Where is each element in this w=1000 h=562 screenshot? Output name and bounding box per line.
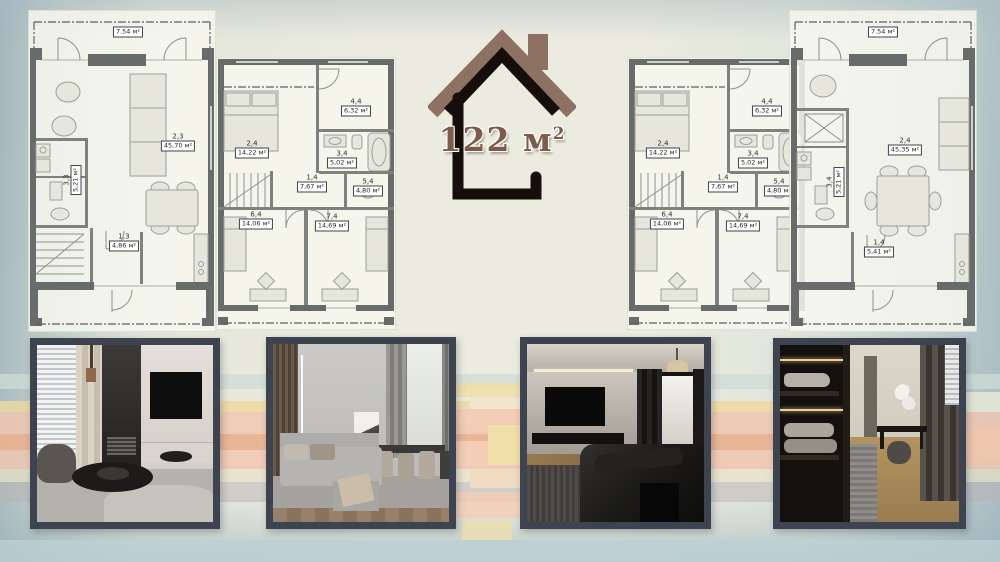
wardrobe-divider: [843, 345, 850, 522]
room-code: 1,4: [306, 174, 317, 182]
balcony-label: 7.54 м²: [113, 27, 143, 38]
room-area: 45,35 м²: [888, 145, 922, 156]
room-code: 2,4: [899, 137, 910, 145]
mosaic-tile: [452, 441, 488, 465]
room-area: 14,69 м²: [726, 221, 760, 232]
bed-bench: [640, 483, 679, 522]
tv: [545, 387, 605, 426]
room-label-bathroom: 3,3 5,21 м²: [63, 165, 82, 195]
side-table: [160, 451, 192, 462]
room-area: 7,67 м²: [297, 182, 327, 193]
mosaic-tile: [966, 428, 1000, 462]
room-code: 1,3: [118, 233, 129, 241]
room-code: 3,4: [826, 176, 834, 187]
room-code: 5,4: [773, 178, 784, 186]
room-code: 5,4: [362, 178, 373, 186]
room-label-hall: 1,4 7,67 м²: [297, 174, 327, 193]
dining-chair: [398, 453, 414, 480]
room-area: 14,06 м²: [650, 219, 684, 230]
shelf-led-strip: [780, 359, 843, 361]
room-code: 6,4: [661, 211, 672, 219]
room-label-living: 2,3 45,70 м²: [161, 133, 195, 152]
room-label-hall: 1,4 7,67 м²: [708, 174, 738, 193]
fireplace: [107, 437, 135, 455]
tv: [150, 372, 203, 420]
floor-plan-2: 2,4 14,22 м² 4,4 6,32 м² 3,4 5,02 м² 1,4…: [216, 57, 396, 330]
room-area: 14,69 м²: [315, 221, 349, 232]
room-area: 14,22 м²: [235, 148, 269, 159]
room-label-hall: 1,3 4,86 м²: [109, 233, 139, 252]
room-code: 4,4: [761, 98, 772, 106]
photo-lounge-scene: [273, 344, 449, 522]
mosaic-tile: [452, 492, 522, 518]
room-code: 2,3: [172, 133, 183, 141]
shelf-led-strip: [780, 409, 843, 411]
room-code: 1,4: [873, 239, 884, 247]
mosaic-tile: [470, 397, 522, 409]
pouf: [887, 441, 910, 464]
logo-area-main: 122 м: [439, 120, 553, 159]
media-console: [532, 433, 624, 444]
room-label-bathroom: 3,4 5,21 м²: [826, 167, 845, 197]
room-area: 5,02 м²: [327, 158, 357, 169]
wardrobe-shelf: [780, 455, 839, 460]
floor-plan-3: 2,4 14,22 м² 4,4 6,32 м² 3,4 5,02 м² 1,4…: [627, 57, 807, 330]
room-code: 2,4: [246, 140, 257, 148]
room-area: 5,21 м²: [834, 167, 845, 197]
room-code: 3,3: [63, 174, 71, 185]
window-blinds: [945, 345, 959, 405]
dining-chair-dark: [440, 451, 449, 479]
room-area: 14,06 м²: [239, 219, 273, 230]
pendant-lamp: [90, 345, 93, 370]
pendant-lamp-shade: [86, 368, 96, 382]
room-area: 4,80 м²: [353, 186, 383, 197]
room-code: 2,4: [657, 140, 668, 148]
runner-rug: [850, 444, 877, 522]
towel-stack: [784, 423, 834, 437]
room-label: 5,4 4,80 м²: [353, 178, 383, 197]
room-label-bedroom: 2,4 14,22 м²: [235, 140, 269, 159]
house-icon: [428, 14, 576, 212]
photo-living-room-scene: [37, 345, 213, 522]
room-code: 4,4: [350, 98, 361, 106]
photo-living-room-render: [30, 338, 220, 529]
mosaic-tile: [470, 470, 522, 488]
room-area: 7.54 м²: [868, 27, 898, 38]
room-label-bedroom: 7,4 14,69 м²: [726, 213, 760, 232]
window: [662, 376, 694, 444]
room-area: 5,02 м²: [738, 158, 768, 169]
photo-wardrobe-scene: [780, 345, 959, 522]
mosaic-tile: [462, 520, 512, 540]
console-leg: [880, 432, 884, 450]
photo-lounge-dining-render: [266, 337, 456, 529]
room-area: 5,41 м²: [864, 247, 894, 258]
room-area: 7.54 м²: [113, 27, 143, 38]
room-area: 7,67 м²: [708, 182, 738, 193]
floor-plan-4: 7.54 м² 2,4 45,35 м² 3,4 5,21 м² 1,4 5,4…: [789, 10, 977, 332]
room-label-bathroom: 3,4 5,02 м²: [327, 150, 357, 169]
sofa-cushion: [310, 444, 335, 460]
throw-blanket: [337, 473, 374, 507]
room-area: 6,32 м²: [752, 106, 782, 117]
pendant-lamp: [667, 360, 688, 372]
room-label-bathroom: 3,4 5,02 м²: [738, 150, 768, 169]
room-code: 1,4: [717, 174, 728, 182]
room-area: 45,70 м²: [161, 141, 195, 152]
room-code: 7,4: [326, 213, 337, 221]
stripe-bottom-blue: [0, 540, 1000, 562]
room-area: 5,21 м²: [71, 165, 82, 195]
room-code: 3,4: [336, 150, 347, 158]
wall-pillar: [864, 356, 877, 437]
dining-chair: [419, 451, 435, 479]
table-bowl: [97, 467, 129, 479]
towel-stack: [784, 373, 831, 387]
room-label-living: 2,4 45,35 м²: [888, 137, 922, 156]
room-label: 4,4 6,32 м²: [752, 98, 782, 117]
logo-area-text: 122 м2: [428, 120, 576, 159]
towel-stack: [784, 439, 838, 453]
mosaic-tile: [452, 383, 522, 397]
room-label: 4,4 6,32 м²: [341, 98, 371, 117]
floor-plan-1-drawing: [28, 10, 216, 332]
console-leg: [920, 432, 924, 450]
room-code: 3,4: [747, 150, 758, 158]
room-area: 6,32 м²: [341, 106, 371, 117]
wardrobe-shelf: [780, 391, 839, 396]
photo-bedroom-scene: [527, 344, 704, 522]
floor-plan-4-drawing: [789, 10, 977, 332]
room-label-hall: 1,4 5,41 м²: [864, 239, 894, 258]
room-area: 4,86 м²: [109, 241, 139, 252]
logo-house-122: 122 м2: [428, 14, 576, 212]
room-code: 7,4: [737, 213, 748, 221]
room-label-bedroom: 6,4 14,06 м²: [239, 211, 273, 230]
room-label-bedroom: 6,4 14,06 м²: [650, 211, 684, 230]
fireplace-panel: [102, 345, 141, 476]
room-code: 6,4: [250, 211, 261, 219]
balcony-label: 7.54 м²: [868, 27, 898, 38]
mosaic-tile: [966, 392, 1000, 412]
sofa-cushion: [284, 444, 309, 460]
armchair: [37, 444, 76, 483]
photo-bedroom-render: [520, 337, 711, 529]
room-area: 14,22 м²: [646, 148, 680, 159]
room-label-bedroom: 2,4 14,22 м²: [646, 140, 680, 159]
presentation-page: 7.54 м² 2,3 45,70 м² 3,3 5,21 м² 1,3 4,8…: [0, 0, 1000, 562]
mosaic-tile: [488, 425, 522, 465]
mosaic-tile: [452, 409, 522, 425]
photo-wardrobe-render: [773, 338, 966, 529]
logo-area-sup: 2: [553, 124, 566, 144]
curtain: [442, 344, 449, 458]
curtain: [386, 344, 407, 458]
floor-plan-1: 7.54 м² 2,3 45,70 м² 3,3 5,21 м² 1,3 4,8…: [28, 10, 216, 332]
room-label-bedroom: 7,4 14,69 м²: [315, 213, 349, 232]
